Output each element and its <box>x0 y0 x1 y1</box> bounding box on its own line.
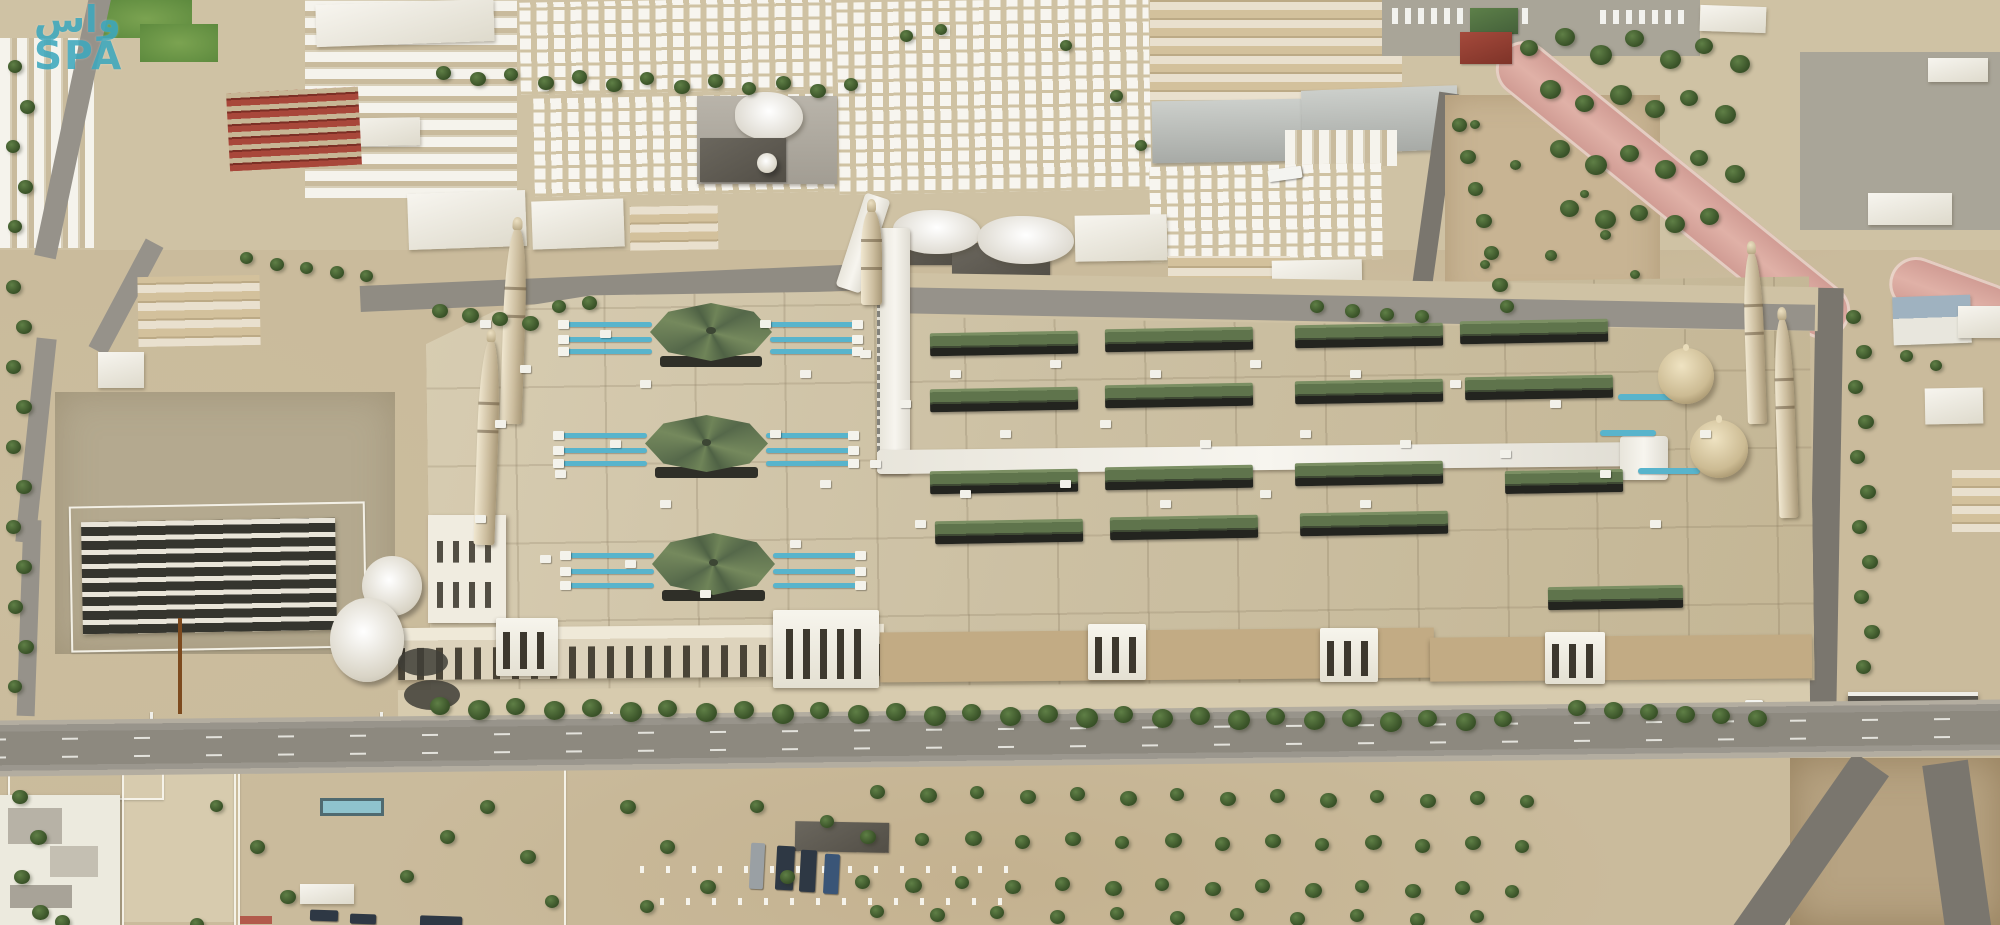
tree <box>190 918 204 925</box>
minaret <box>861 210 882 305</box>
green-skylight-bar <box>1110 515 1258 541</box>
rooftop-ac-unit <box>1000 430 1011 438</box>
ac-unit <box>848 446 859 455</box>
tree <box>432 304 448 318</box>
tree <box>776 76 791 90</box>
tree <box>620 702 642 722</box>
ac-unit <box>560 551 571 560</box>
rooftop-ac-unit <box>1050 360 1061 368</box>
tree <box>700 880 716 894</box>
portal <box>773 610 879 688</box>
tree <box>780 870 795 884</box>
ac-unit <box>558 335 569 344</box>
road <box>15 338 56 544</box>
tree <box>905 878 922 893</box>
tree <box>1115 836 1129 849</box>
disc-white <box>330 598 404 682</box>
tree <box>1055 877 1070 891</box>
tree <box>820 815 834 828</box>
ac-duct <box>570 583 654 588</box>
canopy-white <box>978 216 1074 264</box>
tree <box>1110 907 1124 920</box>
tree <box>1152 709 1173 728</box>
tree <box>620 800 636 814</box>
bldg-white <box>407 190 527 250</box>
ac-unit <box>852 320 863 329</box>
bldg-white <box>300 884 354 904</box>
green-skylight-bar <box>1295 379 1443 405</box>
tree <box>1858 415 1874 429</box>
tree <box>1205 882 1221 896</box>
tree <box>965 831 982 846</box>
tree <box>210 800 223 812</box>
rooftop-ac-unit <box>860 350 871 358</box>
tree <box>1725 165 1745 183</box>
rooftop-ac-unit <box>1300 430 1311 438</box>
tree <box>1545 250 1557 261</box>
tree <box>696 703 717 722</box>
tree <box>1345 304 1360 318</box>
rooftop-ac-unit <box>555 470 566 478</box>
tree <box>1380 308 1394 321</box>
rooftop-ac-unit <box>800 370 811 378</box>
warehouse-gray <box>1151 99 1304 164</box>
veh-blue <box>823 854 840 895</box>
ac-unit <box>560 581 571 590</box>
rooftop-ac-unit <box>540 555 551 563</box>
tree <box>1320 793 1337 808</box>
tree <box>1465 836 1481 850</box>
tree <box>1076 708 1098 728</box>
tree <box>18 180 33 194</box>
tree <box>300 262 313 274</box>
rooftop-ac-unit <box>820 480 831 488</box>
tree <box>1505 885 1519 898</box>
tree <box>955 876 969 889</box>
tree <box>1900 350 1913 362</box>
tree <box>1455 881 1470 895</box>
tree <box>1050 910 1065 924</box>
main-road <box>0 699 2000 776</box>
tree <box>1730 55 1750 73</box>
tree <box>1452 118 1467 132</box>
tree <box>1655 160 1676 179</box>
tree <box>1170 788 1184 801</box>
rooftop-ac-unit <box>960 490 971 498</box>
tree <box>1270 789 1285 803</box>
tree <box>1560 200 1579 217</box>
tree <box>270 258 284 271</box>
green-skylight-bar <box>1300 511 1448 537</box>
tree <box>1540 80 1561 99</box>
tree <box>1110 90 1123 102</box>
tree <box>330 266 344 279</box>
bldg-white <box>531 198 625 249</box>
tree <box>1265 834 1281 848</box>
tree <box>930 908 945 922</box>
veh-dark <box>310 910 338 922</box>
green-skylight-bar <box>1295 461 1443 487</box>
duct <box>1638 468 1700 474</box>
ac-duct <box>568 349 652 354</box>
portal <box>496 618 558 676</box>
tree <box>1105 881 1122 896</box>
rooftop-ac-unit <box>1350 370 1361 378</box>
tree <box>1856 345 1872 359</box>
lawn <box>140 24 218 62</box>
tree <box>886 703 906 721</box>
rooftop-ac-unit <box>1400 440 1411 448</box>
tree <box>1846 310 1861 324</box>
tree <box>1135 140 1147 151</box>
tree <box>1604 702 1623 719</box>
green-skylight-bar <box>930 331 1078 357</box>
rooftop-ac-unit <box>700 590 711 598</box>
green-skylight-bar <box>1465 375 1613 401</box>
tents-grid <box>836 0 1151 195</box>
tree <box>1365 835 1382 850</box>
bldg-white <box>1075 214 1168 262</box>
rooftop-ac-unit <box>625 560 636 568</box>
tree <box>400 870 414 883</box>
tents-rows-v <box>1285 130 1397 166</box>
tree <box>1070 787 1085 801</box>
rooftop-ac-unit <box>1060 480 1071 488</box>
tree <box>506 698 525 715</box>
bldg-white <box>98 352 144 388</box>
tree <box>6 280 21 294</box>
tree <box>1854 590 1869 604</box>
rooftop-ac-unit <box>1700 430 1711 438</box>
rooftop-ac-unit <box>610 440 621 448</box>
cars <box>1600 10 1690 24</box>
tree <box>240 252 253 264</box>
tree <box>1190 707 1210 725</box>
tree <box>1468 182 1483 196</box>
duct <box>1600 430 1656 436</box>
bldg-complex <box>0 795 120 925</box>
ac-duct <box>773 569 857 574</box>
tree <box>1418 710 1437 727</box>
wall-line <box>69 501 368 652</box>
tree <box>440 830 455 844</box>
tree <box>1410 913 1425 925</box>
tree <box>55 915 70 925</box>
rooftop-ac-unit <box>1250 360 1261 368</box>
tree <box>1848 380 1863 394</box>
tree <box>1170 911 1185 925</box>
tree <box>1420 794 1436 808</box>
green-skylight-bar <box>1460 319 1608 345</box>
rooftop-ac-unit <box>1650 520 1661 528</box>
tree <box>1864 625 1880 639</box>
aerial-photo: واس SPA <box>0 0 2000 925</box>
arcade <box>1430 634 1812 681</box>
tree <box>582 296 597 310</box>
blocks-tan <box>1150 0 1402 100</box>
tree <box>1215 837 1230 851</box>
tree <box>870 785 885 799</box>
tree <box>1165 833 1182 848</box>
tree <box>1595 210 1616 229</box>
tree <box>1850 450 1865 464</box>
ac-duct <box>770 337 854 342</box>
rooftop-ac-unit <box>600 330 611 338</box>
circle-dark <box>398 648 448 676</box>
ac-duct <box>570 569 654 574</box>
tree <box>1456 713 1476 731</box>
rooftop-ac-unit <box>760 320 771 328</box>
portal <box>1545 632 1605 684</box>
tree <box>772 704 794 724</box>
rooftop-ac-unit <box>1160 500 1171 508</box>
rooftop-ac-unit <box>660 500 671 508</box>
tree <box>8 220 22 233</box>
bldg-white <box>1928 58 1988 82</box>
veh-dark <box>775 846 795 891</box>
tree <box>1255 879 1270 893</box>
tree <box>1665 215 1685 233</box>
ac-duct <box>570 553 654 558</box>
ac-duct <box>568 322 652 327</box>
blocks-tan <box>137 275 260 347</box>
red-rows <box>226 87 362 172</box>
tree <box>1856 660 1871 674</box>
tree <box>1310 300 1324 313</box>
green-skylight-bar <box>1548 585 1683 610</box>
ac-unit <box>560 567 571 576</box>
rooftop-ac-unit <box>520 365 531 373</box>
rooftop-ac-unit <box>915 520 926 528</box>
rooftop-ac-unit <box>1100 420 1111 428</box>
ac-duct <box>563 448 647 453</box>
tree <box>1304 711 1325 730</box>
tree <box>1550 140 1570 158</box>
tree <box>1715 105 1736 124</box>
ac-unit <box>553 431 564 440</box>
ac-duct <box>563 433 647 438</box>
tree <box>708 74 723 88</box>
tree <box>1230 908 1244 921</box>
tree <box>436 66 451 80</box>
tree <box>1610 85 1632 105</box>
tree <box>1660 50 1681 69</box>
spa-watermark-arabic: واس <box>34 2 123 38</box>
wall-line <box>122 752 240 925</box>
tree <box>742 82 756 95</box>
tree <box>1484 246 1499 260</box>
tree <box>545 895 559 908</box>
tree <box>924 706 946 726</box>
veh-dark <box>799 850 817 893</box>
rooftop-ac-unit <box>1260 490 1271 498</box>
tree <box>1415 310 1429 323</box>
tree <box>1355 880 1369 893</box>
tree <box>1065 832 1081 846</box>
tree <box>1852 520 1867 534</box>
ac-duct <box>770 349 854 354</box>
blocks-tan <box>630 205 719 251</box>
tree <box>1228 710 1250 730</box>
tree <box>1350 909 1364 922</box>
tree <box>1114 706 1133 723</box>
green-skylight-bar <box>1105 327 1253 353</box>
ac-duct <box>773 553 857 558</box>
green-skylight-bar <box>1105 383 1253 409</box>
tree <box>1600 230 1611 240</box>
veh-dark <box>350 914 376 925</box>
tree <box>1580 190 1589 198</box>
tree <box>8 600 23 614</box>
bldg-white <box>1868 193 1952 225</box>
green-skylight-bar <box>930 387 1078 413</box>
pole-dark <box>178 618 182 714</box>
tree <box>1470 910 1484 923</box>
tree <box>544 701 565 720</box>
ac-unit <box>558 320 569 329</box>
tree <box>1676 706 1695 723</box>
rooftop-ac-unit <box>790 540 801 548</box>
rooftop-ac-unit <box>1500 450 1511 458</box>
tree <box>990 906 1004 919</box>
rooftop-ac-unit <box>1550 400 1561 408</box>
tree <box>16 320 32 334</box>
tree <box>1625 30 1644 47</box>
tree <box>430 697 450 715</box>
tree <box>1620 145 1639 162</box>
ac-duct <box>770 322 854 327</box>
tree <box>1315 838 1329 851</box>
ac-unit <box>855 567 866 576</box>
tree <box>1305 883 1322 898</box>
tree <box>8 680 22 693</box>
bldg-white <box>315 0 494 47</box>
tree <box>1266 708 1285 725</box>
tree <box>734 701 754 719</box>
rooftop-ac-unit <box>1600 470 1611 478</box>
tree <box>962 704 981 721</box>
tree <box>1370 790 1384 803</box>
disc-white <box>757 153 777 173</box>
tree <box>970 786 984 799</box>
tree <box>504 68 518 81</box>
tree <box>1415 839 1430 853</box>
spa-watermark-latin: SPA <box>34 38 123 76</box>
tree <box>6 140 20 153</box>
ac-duct <box>766 448 850 453</box>
tree <box>1060 40 1072 51</box>
rooftop-ac-unit <box>950 370 961 378</box>
tree <box>1020 790 1036 804</box>
bldg-white <box>1700 5 1767 33</box>
tree <box>1520 795 1534 808</box>
tree <box>360 270 373 282</box>
tree <box>1480 260 1490 269</box>
tree <box>1405 884 1421 898</box>
tree <box>848 705 869 724</box>
tree <box>750 800 764 813</box>
tree <box>1120 791 1137 806</box>
dome-stone <box>1690 420 1748 478</box>
tree <box>1630 270 1640 279</box>
green-skylight-bar <box>935 519 1083 545</box>
bldg-white <box>1958 306 2000 338</box>
tree <box>1470 791 1485 805</box>
roof-red <box>1460 32 1512 64</box>
tree <box>1860 485 1876 499</box>
tree <box>1590 45 1612 65</box>
ac-unit <box>855 581 866 590</box>
tree <box>1342 709 1362 727</box>
ac-duct <box>563 461 647 466</box>
tree <box>1380 712 1402 732</box>
rooftop-ac-unit <box>1200 440 1211 448</box>
roof-green <box>1470 8 1518 34</box>
tree <box>1000 707 1021 726</box>
tree <box>582 699 602 717</box>
tree <box>640 900 654 913</box>
rooftop-ac-unit <box>495 420 506 428</box>
ac-unit <box>553 459 564 468</box>
tree <box>1515 840 1529 853</box>
canopy-white <box>735 92 803 140</box>
rooftop-ac-unit <box>1360 500 1371 508</box>
tree <box>480 800 495 814</box>
tree <box>1038 705 1058 723</box>
tree <box>660 840 675 854</box>
spa-watermark: واس SPA <box>34 2 123 76</box>
rooftop-ac-unit <box>475 515 486 523</box>
tree <box>8 60 22 73</box>
portal <box>1088 624 1146 680</box>
tree <box>935 24 947 35</box>
green-skylight-bar <box>1105 465 1253 491</box>
tree <box>572 70 587 84</box>
tree <box>1645 100 1665 118</box>
ac-duct <box>773 583 857 588</box>
ac-unit <box>553 446 564 455</box>
ac-unit <box>855 551 866 560</box>
tree <box>1575 95 1594 112</box>
ac-duct <box>766 461 850 466</box>
tree <box>6 440 21 454</box>
pool-teal <box>320 798 384 816</box>
tree <box>552 300 566 313</box>
tree <box>844 78 858 91</box>
tree <box>900 30 913 42</box>
bldg-white <box>1925 387 1984 424</box>
tents-grid <box>1149 163 1383 263</box>
ac-unit <box>848 459 859 468</box>
rooftop-ac-unit <box>1450 380 1461 388</box>
tree <box>1510 160 1521 170</box>
tree <box>250 840 265 854</box>
tree <box>640 72 654 85</box>
tree <box>1555 28 1575 46</box>
veh-dark <box>420 915 462 925</box>
tree <box>1220 792 1236 806</box>
ac-unit <box>852 335 863 344</box>
tree <box>1862 555 1878 569</box>
tree <box>658 700 677 717</box>
tree <box>1015 835 1030 849</box>
blocks-tan <box>1952 470 2000 532</box>
rooftop-ac-unit <box>870 460 881 468</box>
rooftop-ac-unit <box>1150 370 1161 378</box>
tree <box>1500 300 1514 313</box>
tree <box>1748 710 1767 727</box>
tree <box>920 788 937 803</box>
